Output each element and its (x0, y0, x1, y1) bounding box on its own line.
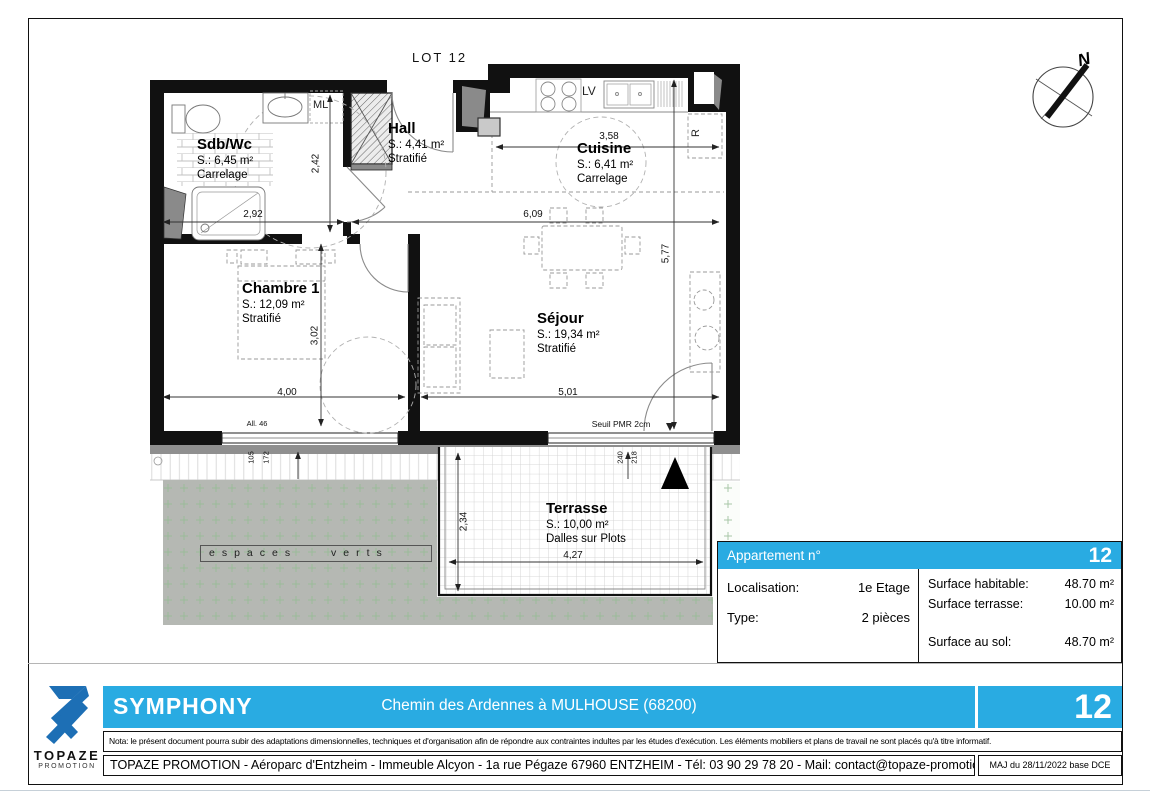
room-floor: Stratifié (537, 342, 600, 356)
lot-label: LOT 12 (412, 50, 467, 65)
company-logo: TOPAZE PROMOTION (30, 684, 104, 779)
info-row-surface-sol: Surface au sol: 48.70 m² (928, 635, 1114, 649)
bottom-edge-line (0, 790, 1150, 791)
room-sejour: Séjour S.: 19,34 m² Stratifié (537, 310, 600, 356)
room-cuisine: Cuisine S.: 6,41 m² Carrelage (577, 140, 633, 186)
dim-terrasse-height: 2,34 (459, 505, 470, 539)
room-surface: S.: 12,09 m² (242, 298, 320, 312)
info-label: Type: (727, 610, 759, 625)
info-value: 1e Etage (858, 580, 910, 595)
apartment-number-badge: 12 (1089, 544, 1112, 568)
dishwasher-label: LV (582, 84, 596, 98)
green-space-label: espaces verts (200, 545, 432, 562)
room-surface: S.: 4,41 m² (388, 138, 444, 152)
room-surface: S.: 6,41 m² (577, 158, 633, 172)
info-table-header: Appartement n° 12 (718, 542, 1121, 569)
dim-sdb-height: 2,42 (311, 147, 322, 181)
dim-bay-h1: 240 (616, 447, 625, 469)
room-terrasse: Terrasse S.: 10,00 m² Dalles sur Plots (546, 500, 626, 546)
dim-kitchen-sejour-width: 6,09 (516, 209, 550, 220)
compass-icon (1033, 65, 1093, 127)
apartment-info-table: Appartement n° 12 Localisation: 1e Etage… (717, 541, 1122, 663)
dim-window-h2: 172 (262, 447, 271, 469)
info-label: Surface habitable: (928, 577, 1029, 591)
divider-line (28, 663, 1122, 664)
info-label: Surface terrasse: (928, 597, 1023, 611)
info-row-type: Type: 2 pièces (727, 610, 910, 625)
footer-revision: MAJ du 28/11/2022 base DCE (978, 755, 1122, 776)
room-floor: Stratifié (242, 312, 320, 326)
footer-company-line: TOPAZE PROMOTION - Aéroparc d'Entzheim -… (103, 755, 975, 776)
dim-kitchen-sejour-height: 5,77 (661, 237, 672, 271)
room-surface: S.: 6,45 m² (197, 154, 253, 168)
dim-sdb-width: 2,92 (236, 209, 270, 220)
walls (150, 64, 740, 445)
info-row-localisation: Localisation: 1e Etage (727, 580, 910, 595)
room-chambre: Chambre 1 S.: 12,09 m² Stratifié (242, 280, 320, 326)
dim-window-h1: 105 (247, 447, 256, 469)
dim-seuil-pmr: Seuil PMR 2cm (589, 419, 653, 429)
info-value: 10.00 m² (1065, 597, 1114, 611)
room-name: Hall (388, 120, 444, 138)
dim-chambre-width: 4,00 (270, 387, 304, 398)
program-address: Chemin des Ardennes à MULHOUSE (68200) (103, 697, 975, 715)
footer-nota: Nota: le présent document pourra subir d… (103, 731, 1122, 752)
room-name: Séjour (537, 310, 600, 328)
floor-boundaries (408, 134, 724, 192)
info-row-surface-terrasse: Surface terrasse: 10.00 m² (928, 597, 1114, 611)
hall-closet (351, 93, 392, 170)
info-table-body: Localisation: 1e Etage Type: 2 pièces Su… (718, 569, 1121, 662)
room-name: Terrasse (546, 500, 626, 518)
room-hall: Hall S.: 4,41 m² Stratifié (388, 120, 444, 166)
dim-bay-h2: 218 (630, 447, 639, 469)
dim-terrasse-width: 4,27 (556, 550, 590, 561)
room-name: Chambre 1 (242, 280, 320, 298)
room-name: Cuisine (577, 140, 633, 158)
dim-kitchen-width: 3,58 (592, 131, 626, 142)
room-floor: Carrelage (577, 172, 633, 186)
fridge-label: R (690, 129, 702, 137)
info-label: Surface au sol: (928, 635, 1011, 649)
logo-title: TOPAZE (30, 749, 104, 763)
footer-lot-number: 12 (978, 686, 1122, 728)
info-table-divider (918, 569, 919, 662)
room-floor: Carrelage (197, 168, 253, 182)
room-surface: S.: 10,00 m² (546, 518, 626, 532)
logo-subtitle: PROMOTION (30, 763, 104, 770)
room-floor: Dalles sur Plots (546, 532, 626, 546)
room-sdb: Sdb/Wc S.: 6,45 m² Carrelage (197, 136, 253, 182)
info-table-title: Appartement n° (727, 548, 821, 563)
dim-chambre-height: 3,02 (310, 319, 321, 353)
dim-sejour-width: 5,01 (551, 387, 585, 398)
info-value: 48.70 m² (1065, 635, 1114, 649)
info-value: 48.70 m² (1065, 577, 1114, 591)
footer-title-bar: SYMPHONY Chemin des Ardennes à MULHOUSE … (103, 686, 975, 728)
room-surface: S.: 19,34 m² (537, 328, 600, 342)
washing-machine-label: ML (313, 99, 328, 111)
info-value: 2 pièces (862, 610, 910, 625)
dim-window-sill: All. 46 (240, 419, 274, 428)
floor-plan-sheet: LOT 12 N Sdb/Wc S.: 6,45 m² Carrelage Ha… (0, 0, 1150, 809)
info-label: Localisation: (727, 580, 799, 595)
info-row-surface-habitable: Surface habitable: 48.70 m² (928, 577, 1114, 591)
room-name: Sdb/Wc (197, 136, 253, 154)
room-floor: Stratifié (388, 152, 444, 166)
topaze-logo-icon (38, 684, 96, 744)
